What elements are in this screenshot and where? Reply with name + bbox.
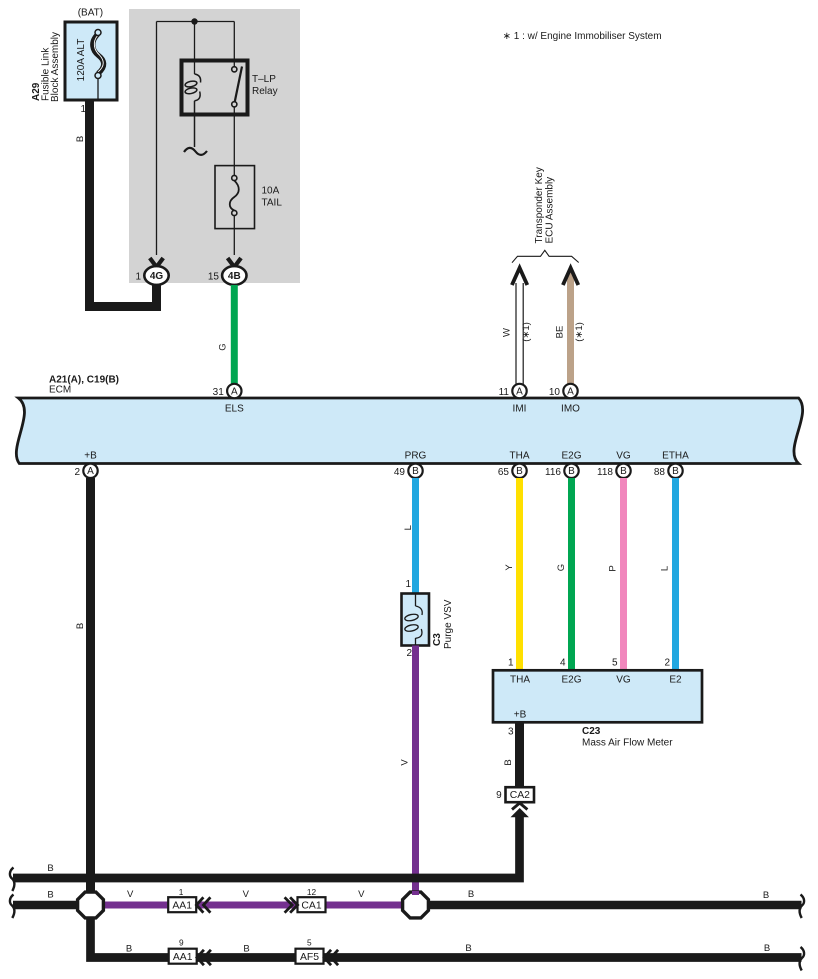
svg-text:V: V — [243, 889, 250, 900]
svg-text:CA2: CA2 — [510, 790, 530, 801]
svg-text:PRG: PRG — [405, 450, 427, 461]
svg-text:BE: BE — [555, 326, 566, 339]
svg-text:B: B — [243, 944, 249, 955]
svg-text:1: 1 — [80, 104, 86, 115]
svg-text:VG: VG — [616, 450, 631, 461]
svg-text:4: 4 — [560, 657, 566, 668]
svg-text:5: 5 — [307, 938, 312, 948]
svg-text:B: B — [126, 944, 132, 955]
svg-text:(BAT): (BAT) — [78, 8, 103, 19]
svg-text:B: B — [516, 466, 523, 477]
svg-text:(∗1): (∗1) — [521, 322, 532, 342]
svg-text:2: 2 — [74, 467, 80, 478]
svg-text:W: W — [502, 328, 513, 337]
svg-text:120A ALT: 120A ALT — [76, 39, 87, 82]
svg-text:31: 31 — [213, 387, 225, 398]
svg-text:E2: E2 — [669, 675, 682, 686]
svg-text:12: 12 — [307, 887, 317, 897]
svg-text:B: B — [412, 466, 419, 477]
svg-text:10A: 10A — [262, 186, 280, 197]
svg-text:AA1: AA1 — [172, 901, 192, 912]
svg-text:1: 1 — [135, 272, 141, 283]
svg-text:B: B — [465, 943, 471, 954]
svg-text:IMO: IMO — [561, 404, 580, 415]
svg-text:C3: C3 — [432, 633, 443, 646]
svg-text:B: B — [568, 466, 575, 477]
svg-text:2: 2 — [664, 657, 670, 668]
svg-text:49: 49 — [394, 467, 406, 478]
svg-text:ECU Assembly: ECU Assembly — [545, 177, 556, 244]
svg-text:116: 116 — [545, 467, 561, 478]
svg-text:B: B — [47, 890, 53, 901]
svg-text:L: L — [660, 566, 671, 571]
svg-text:V: V — [127, 889, 134, 900]
svg-text:5: 5 — [612, 657, 618, 668]
svg-text:V: V — [400, 759, 411, 766]
svg-text:Purge VSV: Purge VSV — [443, 599, 454, 649]
svg-text:11: 11 — [499, 387, 510, 398]
svg-text:(∗1): (∗1) — [574, 322, 585, 342]
svg-text:A: A — [231, 386, 238, 397]
svg-text:ELS: ELS — [225, 404, 244, 415]
svg-text:4B: 4B — [228, 271, 241, 282]
svg-text:E2G: E2G — [561, 450, 581, 461]
svg-text:B: B — [75, 623, 86, 629]
svg-text:1: 1 — [508, 657, 514, 668]
svg-text:Relay: Relay — [252, 86, 278, 97]
svg-text:+B: +B — [84, 450, 97, 461]
svg-text:1: 1 — [405, 579, 411, 590]
svg-text:Block Assembly: Block Assembly — [50, 32, 61, 102]
svg-text:B: B — [75, 136, 86, 142]
svg-text:A: A — [87, 466, 94, 477]
svg-text:P: P — [608, 565, 619, 571]
svg-text:V: V — [358, 889, 365, 900]
svg-text:B: B — [672, 466, 679, 477]
svg-text:∗ 1 : w/ Engine Immobiliser Sy: ∗ 1 : w/ Engine Immobiliser System — [503, 31, 662, 42]
svg-text:THA: THA — [510, 675, 530, 686]
svg-text:L: L — [403, 525, 414, 530]
svg-text:G: G — [218, 343, 229, 350]
svg-text:T–LP: T–LP — [252, 74, 276, 85]
svg-text:Mass Air Flow Meter: Mass Air Flow Meter — [582, 738, 673, 749]
svg-text:CA1: CA1 — [301, 901, 321, 912]
svg-text:15: 15 — [208, 272, 220, 283]
svg-text:B: B — [620, 466, 627, 477]
svg-text:118: 118 — [597, 467, 613, 478]
svg-text:10: 10 — [549, 387, 561, 398]
svg-text:C23: C23 — [582, 726, 601, 737]
svg-text:A: A — [516, 386, 523, 397]
svg-text:9: 9 — [179, 938, 184, 948]
svg-text:9: 9 — [496, 790, 502, 801]
svg-text:AA1: AA1 — [173, 952, 193, 963]
svg-text:1: 1 — [179, 887, 184, 897]
svg-text:2: 2 — [406, 648, 412, 659]
svg-text:88: 88 — [654, 467, 666, 478]
svg-text:Transponder Key: Transponder Key — [534, 167, 545, 243]
svg-text:TAIL: TAIL — [262, 198, 283, 209]
svg-text:G: G — [556, 564, 567, 571]
svg-text:THA: THA — [510, 450, 530, 461]
svg-text:65: 65 — [498, 467, 510, 478]
svg-text:B: B — [468, 889, 474, 900]
svg-text:3: 3 — [508, 726, 514, 737]
svg-text:Y: Y — [504, 564, 515, 571]
svg-text:VG: VG — [616, 675, 631, 686]
svg-text:ECM: ECM — [49, 385, 71, 396]
svg-text:B: B — [503, 759, 514, 765]
svg-text:B: B — [47, 863, 53, 874]
svg-text:E2G: E2G — [561, 675, 581, 686]
svg-text:AF5: AF5 — [300, 952, 319, 963]
svg-text:IMI: IMI — [513, 404, 527, 415]
svg-text:4G: 4G — [150, 271, 164, 282]
svg-text:A: A — [567, 386, 574, 397]
svg-text:+B: +B — [514, 709, 527, 720]
svg-text:ETHA: ETHA — [662, 450, 689, 461]
svg-text:B: B — [763, 890, 769, 901]
svg-text:B: B — [764, 943, 770, 954]
